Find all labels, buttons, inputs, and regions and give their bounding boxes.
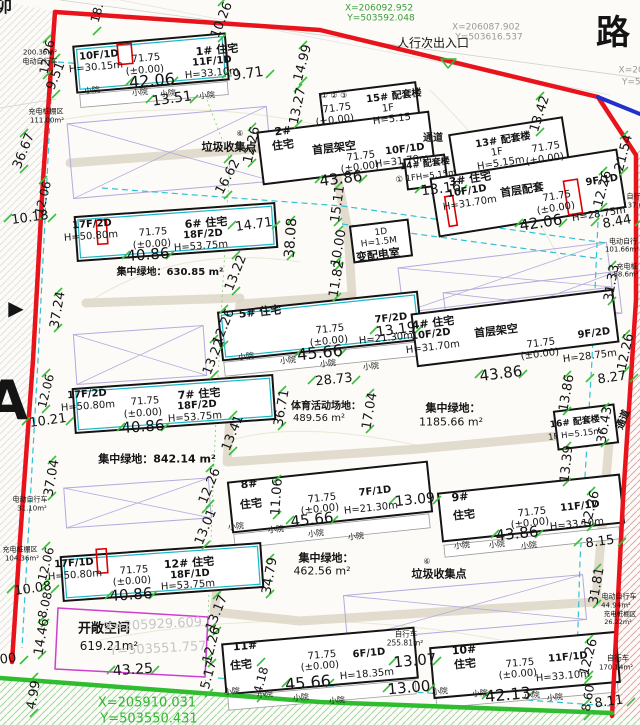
area-label: 体育活动场地： bbox=[291, 402, 361, 412]
facility-label: 充电桩棚区 bbox=[3, 547, 38, 554]
building-label: H=53.75m bbox=[161, 579, 216, 593]
coordinate-label: Y=503 bbox=[622, 79, 640, 88]
dimension-label: 14.46 bbox=[32, 618, 51, 657]
facility-label: 电动自行车 bbox=[23, 59, 58, 66]
dimension-label: 43.25 bbox=[113, 662, 154, 679]
yard-label: 小院 bbox=[308, 529, 325, 539]
area-label: 489.56 m² bbox=[293, 414, 345, 424]
yard-label: 小院 bbox=[228, 522, 245, 532]
site-plan: 18.10.2614.999.7113.5113.2712.2616.6215.… bbox=[0, 0, 640, 725]
area-label: 31.10m² bbox=[17, 506, 47, 513]
dimension-label: 13.07 bbox=[393, 652, 437, 671]
dimension-label: 13.27 bbox=[288, 86, 308, 125]
area-label: 1185.66 m² bbox=[419, 417, 483, 428]
dimension-label: 13.09 bbox=[394, 491, 435, 509]
facility-label: 自行车 bbox=[395, 630, 418, 638]
dimension-label: 15# 配套楼 bbox=[366, 89, 423, 106]
dimension-label: 43.86 bbox=[479, 364, 523, 384]
yard-label: 小院 bbox=[293, 693, 310, 702]
area-label: 255.81m² bbox=[387, 639, 424, 647]
building-label: 住宅 bbox=[454, 658, 477, 671]
area-label: 170.14m² bbox=[599, 665, 633, 672]
plan-text: ⑥ bbox=[236, 130, 243, 138]
dimension-label: 40.86 bbox=[126, 246, 170, 264]
coordinate-label: Y=503616.537 bbox=[455, 34, 522, 43]
dimension-label: 17.04 bbox=[360, 392, 379, 431]
area-label: 44.94m² bbox=[601, 603, 631, 610]
dimension-label: 13.86 bbox=[557, 374, 576, 413]
yard-label: 小院 bbox=[472, 689, 489, 698]
cutoff-character: 卯 bbox=[0, 0, 12, 15]
dimension-label: 34.79 bbox=[260, 557, 279, 596]
dimension-label: 14.99 bbox=[292, 43, 314, 82]
building-label: H=53.75m bbox=[174, 240, 229, 254]
dimension-label: 13.00 bbox=[387, 679, 431, 698]
entrance-arrow-icon: ▶ bbox=[8, 298, 23, 318]
dimension-label: 45.66 bbox=[284, 673, 331, 693]
building-label: H=33.10m bbox=[536, 670, 591, 685]
yard-label: 小院 bbox=[524, 691, 541, 700]
dimension-label: 12.26 bbox=[616, 332, 636, 371]
facility-label: 垃圾收集点 bbox=[412, 569, 467, 580]
facility-label: 充电桩棚区 bbox=[29, 109, 64, 116]
dimension-label: 2# bbox=[274, 125, 292, 138]
yard-label: 小院 bbox=[268, 525, 285, 535]
coordinate-label: X=206 bbox=[619, 67, 640, 76]
facility-label: 通道 bbox=[616, 409, 633, 431]
area-label: 集中绿地： bbox=[426, 403, 481, 414]
block-letter-label: A bbox=[0, 374, 28, 428]
building-label: 首层架空 bbox=[473, 323, 518, 339]
yard-label: 小院 bbox=[454, 541, 471, 551]
coordinate-label: Y=503550.431 bbox=[100, 713, 197, 725]
dimension-label: 13.42 bbox=[528, 94, 552, 133]
dimension-label: 9# bbox=[451, 491, 469, 504]
dimension-label: 37.04 bbox=[42, 459, 61, 498]
dimension-label: 13.01 bbox=[193, 507, 219, 546]
building-label: H=30.15m bbox=[69, 61, 124, 76]
dimension-label: 16.62 bbox=[214, 158, 243, 197]
building-label: 7F/1D bbox=[358, 485, 392, 498]
plan-text: (±0.00) bbox=[315, 114, 354, 129]
building-label: H=50.80m bbox=[61, 400, 116, 414]
plan-text: ⑥ bbox=[423, 558, 430, 566]
building-label: H=5.15 bbox=[372, 113, 411, 128]
dimension-label: 13.41 bbox=[220, 413, 246, 452]
yard-label: 小院 bbox=[280, 356, 297, 366]
area-label: 58.6m² bbox=[613, 272, 638, 279]
coordinate-label: X=205929.609 bbox=[104, 616, 203, 634]
dimension-label: 10.21 bbox=[29, 412, 68, 430]
plan-text: (±0.00) bbox=[520, 348, 559, 363]
building-label: 住宅 bbox=[452, 508, 475, 521]
building-label: H=33.10m bbox=[549, 517, 604, 533]
facility-label: 充电桩 bbox=[617, 264, 638, 271]
coordinate-label: Y=503551.757 bbox=[109, 640, 207, 658]
area-label: 137.0m² bbox=[623, 203, 640, 210]
building-label: H=50.80m bbox=[64, 230, 119, 244]
dimension-label: 13.22 bbox=[201, 337, 227, 376]
facility-label: 变配电室 bbox=[355, 247, 400, 263]
dimension-label: 10.18 bbox=[11, 209, 50, 227]
coordinate-label: Y=503592.048 bbox=[347, 15, 414, 24]
facility-label: 电动自行车 bbox=[602, 594, 637, 601]
area-label: 101.66m² bbox=[605, 247, 639, 254]
building-label: 住宅 bbox=[271, 138, 294, 152]
dimension-label: 10.26 bbox=[209, 0, 235, 39]
building-label: H=53.75m bbox=[168, 411, 223, 425]
building-label: 住宅 bbox=[230, 659, 253, 672]
dimension-label: 36.67 bbox=[11, 131, 37, 170]
area-label: 集中绿地：842.14 m² bbox=[98, 454, 216, 465]
coordinate-label: X=205910.031 bbox=[98, 697, 196, 710]
dimension-label: 11.06 bbox=[269, 478, 285, 516]
building-label: H=31.70m bbox=[405, 340, 460, 357]
dimension-label: 14.71 bbox=[235, 216, 274, 234]
facility-label: 充电桩棚区 bbox=[604, 611, 637, 618]
yard-label: 小院 bbox=[521, 541, 538, 551]
area-label: 462.56 m² bbox=[293, 566, 350, 577]
dimension-label: 28.73 bbox=[315, 372, 353, 389]
building-label: 9F/2D bbox=[577, 327, 611, 341]
dimension-label: 18. bbox=[89, 2, 106, 24]
yard-label: 小院 bbox=[329, 696, 346, 705]
dimension-label: 13# 配套楼 bbox=[475, 132, 532, 151]
facility-label: 自行车 bbox=[607, 654, 630, 662]
dimension-label: 13.39 bbox=[559, 445, 576, 483]
plan-text: (±0.00) bbox=[498, 668, 537, 681]
building-label: H=50.80m bbox=[48, 569, 103, 583]
yard-label: 小院 bbox=[257, 690, 274, 699]
dimension-label: 5.17 bbox=[199, 659, 219, 690]
dimension-label: 42.06 bbox=[519, 212, 564, 234]
area-label: 集中绿地：630.85 m² bbox=[117, 268, 224, 278]
plan-text: (±0.00) bbox=[525, 152, 565, 168]
yard-label: 小院 bbox=[84, 86, 101, 95]
road-name: 路 bbox=[596, 16, 630, 50]
dimension-label: 8.11 bbox=[594, 694, 624, 711]
dimension-label: 36.71 bbox=[272, 389, 291, 428]
yard-label: 小院 bbox=[160, 89, 177, 98]
dimension-label: 5# 住宅 bbox=[238, 304, 282, 319]
dimension-label: 13.22 bbox=[223, 253, 249, 292]
building-label: H=28.75m bbox=[562, 349, 617, 366]
dimension-label: 38.08 bbox=[283, 218, 300, 259]
dimension-label: 8.27 bbox=[597, 370, 627, 387]
area-label: 26.22m² bbox=[604, 619, 632, 626]
yard-label: 小院 bbox=[238, 352, 255, 362]
labels-layer: 18.10.2614.999.7113.5113.2712.2616.6215.… bbox=[0, 0, 640, 725]
facility-label: 垃圾收集点 bbox=[202, 142, 257, 153]
area-label: 集中绿地： bbox=[299, 553, 354, 564]
dimension-label: 40.86 bbox=[121, 418, 165, 436]
yard-label: 小院 bbox=[224, 687, 241, 696]
building-label: 住宅 bbox=[239, 497, 262, 510]
dimension-label: 15.11 bbox=[329, 185, 347, 224]
area-label: 200.35m² bbox=[23, 50, 57, 57]
yard-label: 小院 bbox=[547, 693, 564, 702]
dimension-label: 21.54 bbox=[613, 133, 635, 172]
dimension-label: 40.86 bbox=[109, 586, 153, 604]
building-label: 6F/1D bbox=[352, 648, 385, 661]
dimension-label: 8.15 bbox=[585, 534, 615, 551]
dimension-label: 37.24 bbox=[48, 291, 67, 330]
dimension-label: 4.99 bbox=[25, 680, 43, 711]
coordinate-label: X=206092.952 bbox=[345, 5, 413, 14]
building-label: H=21.30m bbox=[343, 501, 398, 517]
dimension-label: 8# bbox=[240, 478, 258, 491]
dimension-label: 11# bbox=[232, 639, 257, 652]
yard-label: 小院 bbox=[132, 88, 149, 97]
facility-label: 自行车 bbox=[627, 194, 640, 201]
facility-label: 电动自行 bbox=[609, 239, 637, 246]
building-label: H=33.10m bbox=[185, 67, 240, 82]
dimension-label: 12.26 bbox=[197, 466, 223, 505]
dimension-label: 9.00 bbox=[0, 652, 17, 669]
yard-label: 小院 bbox=[489, 540, 506, 550]
area-label: 104.36m² bbox=[5, 556, 39, 563]
dimension-label: 43.86 bbox=[319, 169, 363, 189]
coordinate-label: X=206087.902 bbox=[452, 24, 520, 33]
yard-label: 小院 bbox=[320, 359, 337, 369]
dimension-label: 12.26 bbox=[201, 625, 223, 664]
yard-label: 小院 bbox=[432, 687, 449, 696]
plan-text: ① ② ③ bbox=[321, 92, 348, 100]
yard-label: 小院 bbox=[363, 362, 380, 372]
yard-label: 小院 bbox=[348, 532, 365, 542]
dimension-label: 12.06 bbox=[36, 373, 56, 409]
yard-label: 小院 bbox=[199, 91, 216, 100]
building-label: 首层配套 bbox=[499, 181, 544, 199]
dimension-label: 10# bbox=[451, 643, 476, 656]
facility-label: 通道 bbox=[423, 134, 443, 144]
area-label: 111.00m² bbox=[30, 118, 64, 125]
dimension-label: 45.66 bbox=[290, 510, 334, 529]
facility-label: 电动自行车 bbox=[13, 497, 48, 504]
dimension-label: 36.43 bbox=[595, 406, 614, 445]
